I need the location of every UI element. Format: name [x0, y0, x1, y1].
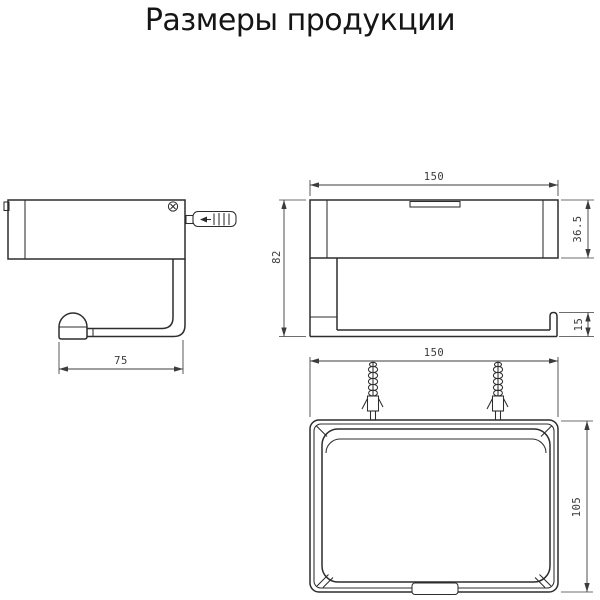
dim-label-tray-depth: 105 [571, 497, 583, 517]
dim-label-body-height: 36.5 [572, 215, 584, 242]
front-view: 150 82 36.5 15 [271, 171, 594, 337]
dimension-top-width: 150 [310, 347, 558, 417]
side-view: 75 [4, 200, 236, 374]
dimension-tray-depth: 105 [561, 421, 593, 592]
dim-label-hook-lip: 15 [573, 318, 585, 332]
dimension-body-height: 36.5 [561, 200, 594, 258]
front-arm [310, 258, 557, 337]
arm-end-cap [59, 313, 87, 339]
dim-label-arm-length: 75 [114, 355, 128, 367]
front-top-slot [410, 202, 460, 208]
front-body [310, 200, 558, 258]
dim-label-top-width: 150 [424, 347, 444, 359]
roll-arm [87, 259, 185, 337]
side-body [8, 200, 185, 259]
dimension-total-height: 82 [271, 200, 306, 337]
top-view: 150 [310, 347, 593, 595]
screw-icon [168, 202, 177, 211]
dim-label-front-width: 150 [424, 171, 444, 183]
dimension-hook-lip: 15 [559, 313, 594, 337]
tray-body [310, 420, 558, 595]
dimension-front-width: 150 [310, 171, 558, 196]
wall-anchor-left-icon [362, 362, 383, 420]
dim-label-total-height: 82 [271, 250, 283, 264]
dimension-arm-length: 75 [59, 340, 183, 374]
wall-anchor-icon [186, 212, 236, 227]
tray-bottom-tab [412, 583, 458, 595]
dimension-drawing: 75 150 82 [0, 0, 600, 600]
wall-anchor-right-icon [487, 362, 508, 420]
